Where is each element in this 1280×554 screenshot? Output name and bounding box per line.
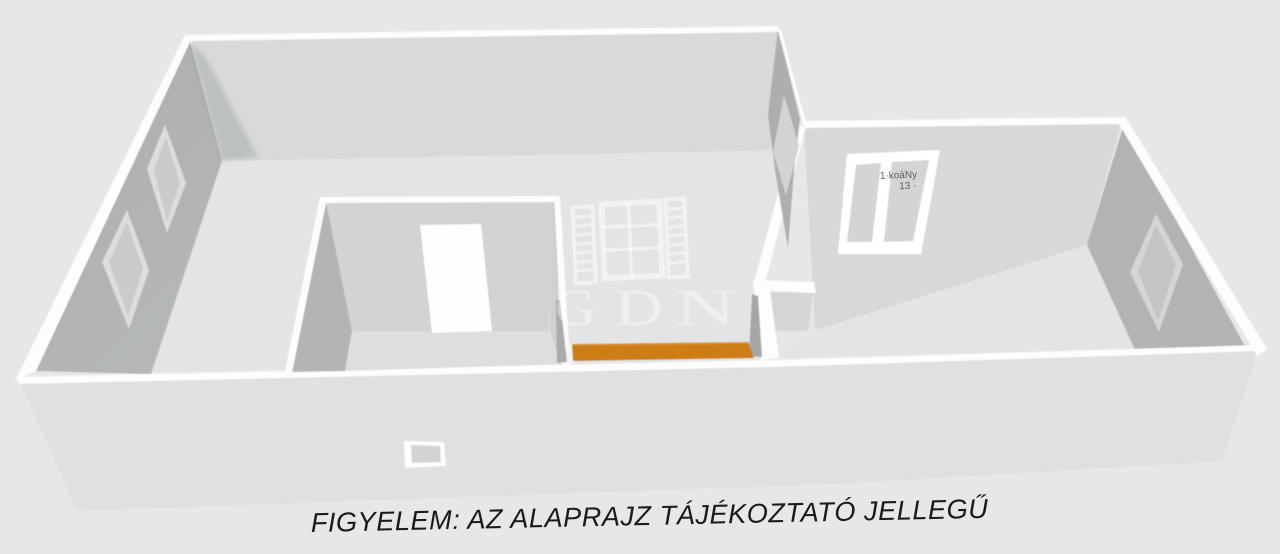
svg-text:N: N <box>675 279 736 337</box>
svg-text:D: D <box>615 279 663 336</box>
svg-text:13 ·: 13 · <box>899 181 917 193</box>
svg-text:G: G <box>555 279 596 336</box>
